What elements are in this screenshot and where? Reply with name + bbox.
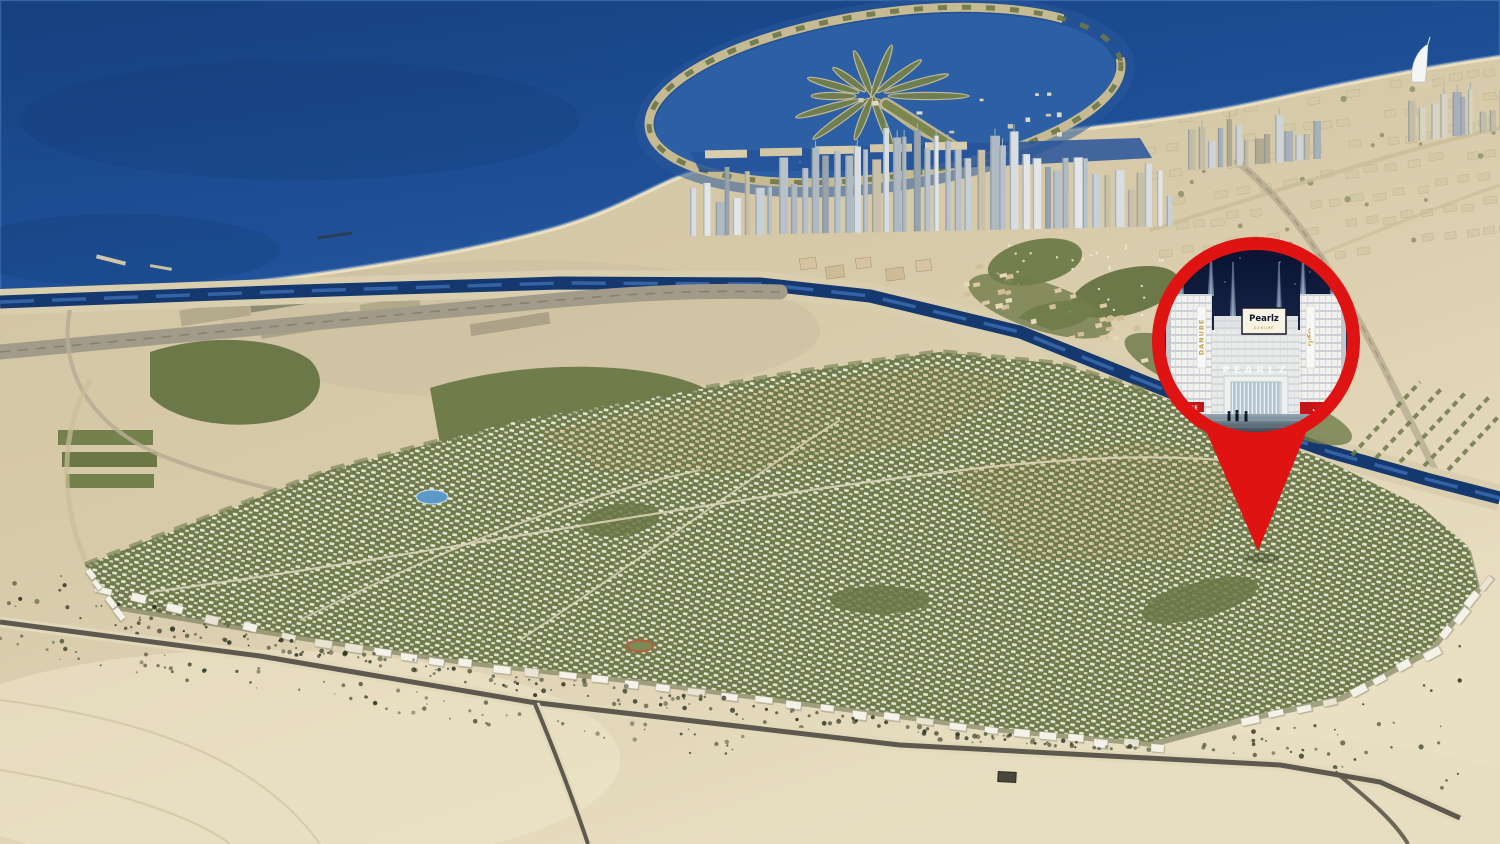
lake xyxy=(416,490,448,504)
billboard-title: Pearlz xyxy=(1249,314,1279,324)
facade-text: PEARLZ xyxy=(1222,365,1289,376)
aerial-map-canvas: DANUBE DANUBE دانوب دانوب PEARLZ Pea xyxy=(0,0,1500,844)
aerial-map: DANUBE DANUBE دانوب دانوب PEARLZ Pea xyxy=(0,0,1500,844)
road-structure xyxy=(998,772,1016,783)
billboard-subtitle: DANUBE xyxy=(1254,326,1275,330)
billboard: Pearlz DANUBE xyxy=(1242,308,1286,334)
left-tower-sign: DANUBE xyxy=(1198,319,1206,356)
right-tower-sign: دانوب xyxy=(1307,328,1315,347)
running-track xyxy=(627,641,653,652)
